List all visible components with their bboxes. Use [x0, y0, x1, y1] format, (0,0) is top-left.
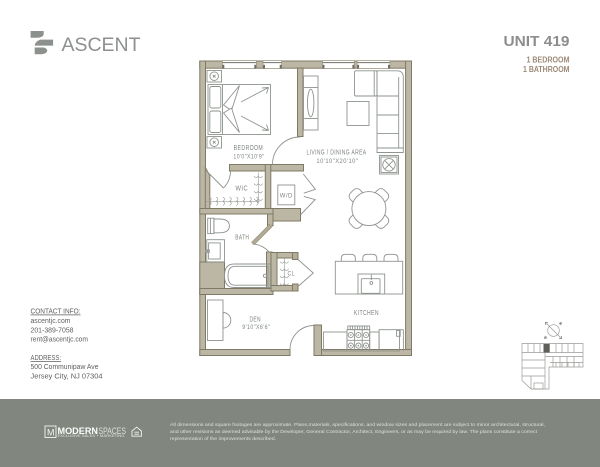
- svg-text:BATH: BATH: [235, 235, 249, 242]
- svg-text:EXCLUSIVE SALES + MARKETING: EXCLUSIVE SALES + MARKETING: [58, 434, 125, 438]
- svg-text:W/D: W/D: [280, 192, 293, 199]
- svg-text:All dimensions and square foot: All dimensions and square footages are a…: [170, 422, 545, 428]
- svg-text:representation of the improvem: representation of the improvements descr…: [170, 436, 276, 442]
- svg-text:DEN: DEN: [249, 317, 261, 324]
- svg-text:CL: CL: [287, 270, 295, 277]
- svg-text:10'10"X20'10": 10'10"X20'10": [316, 158, 358, 165]
- svg-text:KITCHEN: KITCHEN: [354, 310, 379, 317]
- svg-text:10'0"X10'9": 10'0"X10'9": [233, 153, 264, 160]
- svg-text:ADDRESS:: ADDRESS:: [31, 353, 62, 362]
- svg-text:500 Communipaw Ave: 500 Communipaw Ave: [31, 362, 99, 371]
- svg-text:1 BATHROOM: 1 BATHROOM: [523, 64, 570, 74]
- svg-text:UNIT 419: UNIT 419: [504, 34, 570, 50]
- svg-text:WIC: WIC: [236, 185, 249, 192]
- svg-text:ascentjc.com: ascentjc.com: [31, 316, 71, 325]
- svg-text:ASCENT: ASCENT: [62, 34, 141, 56]
- svg-text:201-389-7058: 201-389-7058: [31, 325, 74, 334]
- svg-text:9'10"X6'6": 9'10"X6'6": [242, 324, 270, 331]
- svg-text:M: M: [47, 427, 55, 437]
- svg-text:and other revisions as deemed: and other revisions as deemed advisable …: [170, 429, 538, 435]
- svg-text:Jersey City, NJ 07304: Jersey City, NJ 07304: [31, 371, 103, 380]
- svg-text:rent@ascentjc.com: rent@ascentjc.com: [31, 335, 89, 344]
- svg-text:BEDROOM: BEDROOM: [234, 145, 264, 152]
- svg-text:CONTACT INFO:: CONTACT INFO:: [31, 307, 81, 316]
- svg-text:LIVING / DINING AREA: LIVING / DINING AREA: [307, 149, 367, 156]
